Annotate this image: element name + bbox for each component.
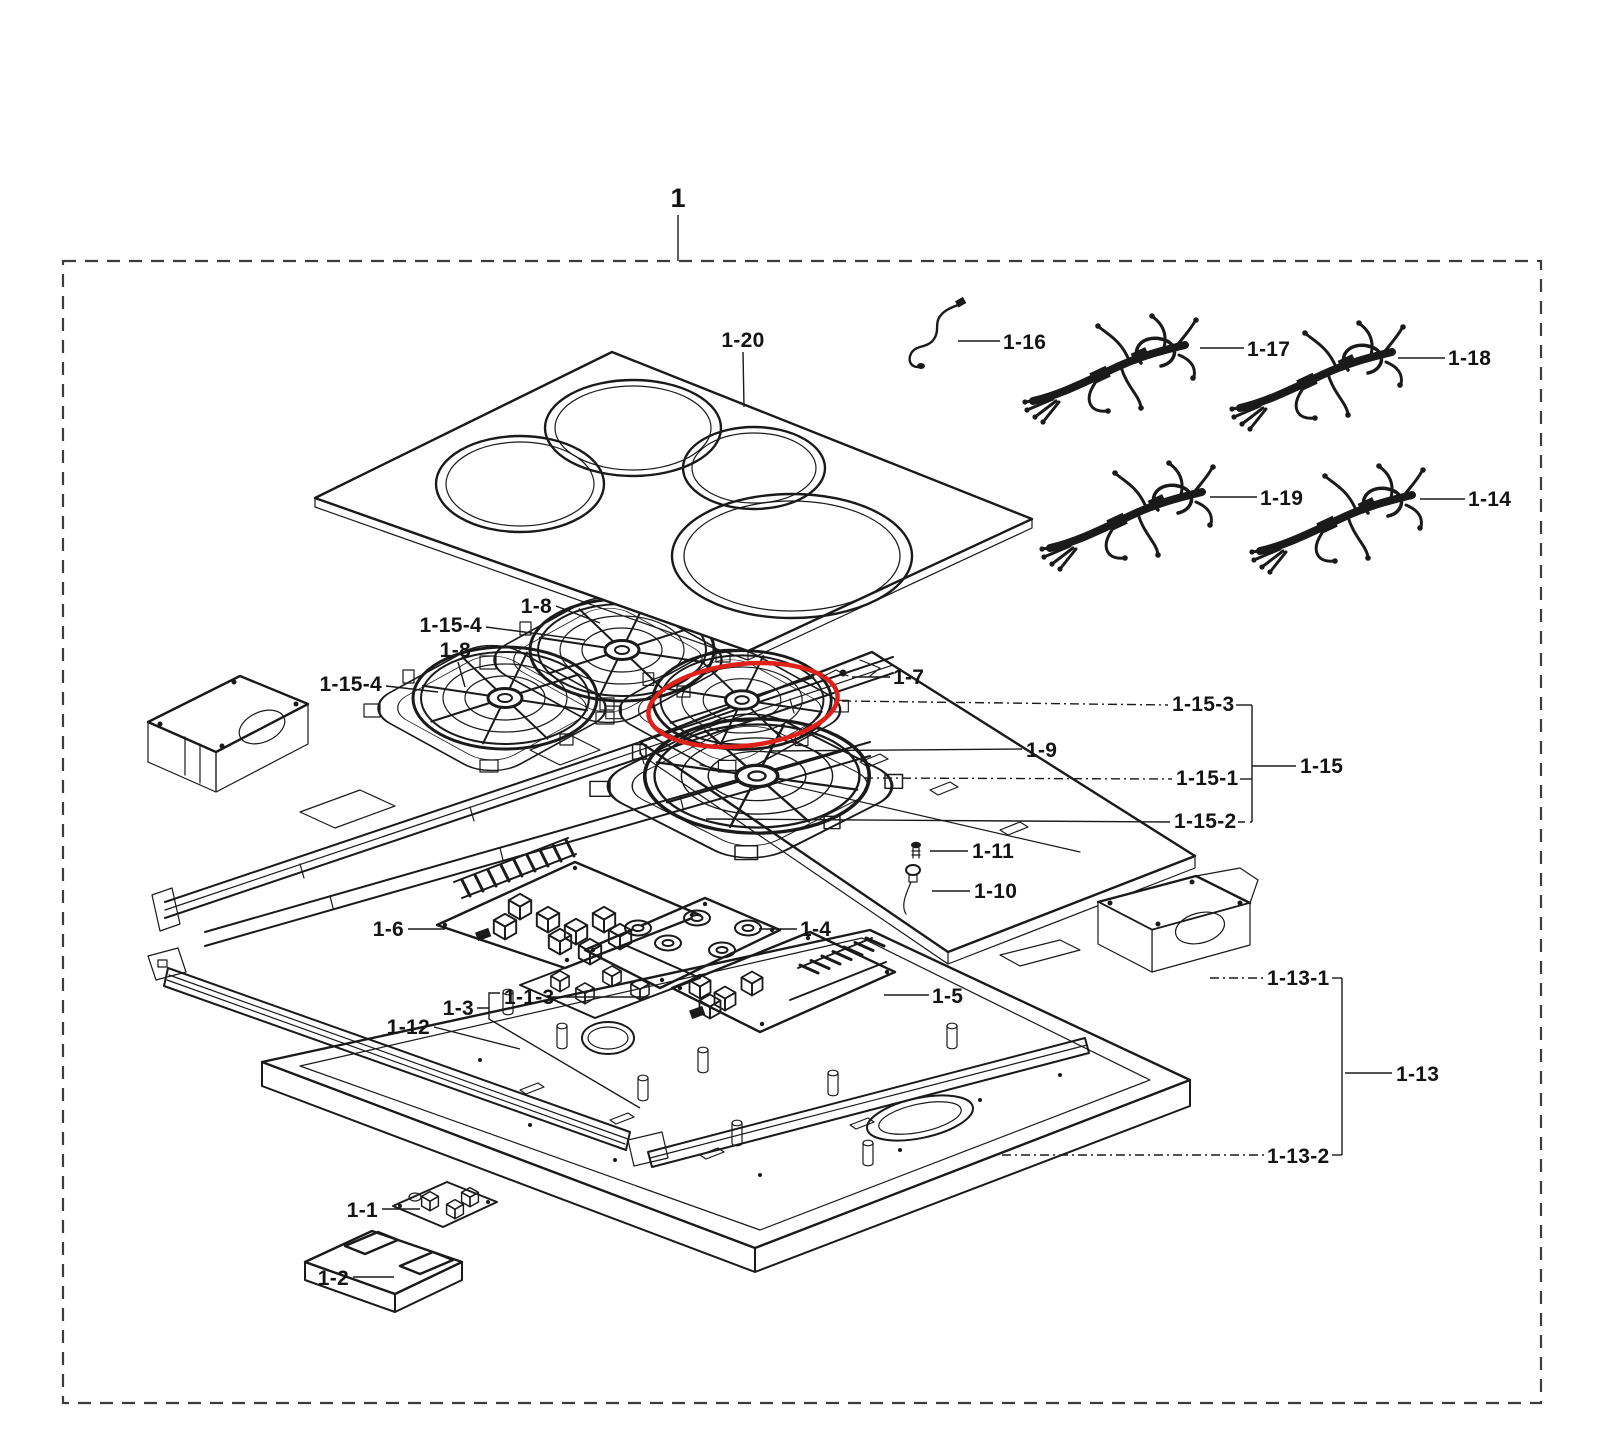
harness-1-19 [1039,460,1215,571]
part-label-1-1-3: 1-1-3 [504,986,555,1009]
part-label-1-3: 1-3 [443,997,474,1020]
part-label-1: 1 [670,183,685,213]
harness-1-18 [1229,320,1405,431]
base-pan [262,930,1190,1272]
part-label-1-7: 1-7 [893,666,924,689]
part-label-1-15-1: 1-15-1 [1176,767,1239,790]
induction-coil-left [403,647,597,749]
control-board-1-1 [393,1182,497,1227]
part-label-1-15-2: 1-15-2 [1174,810,1237,833]
part-label-1-20: 1-20 [721,329,764,352]
assembly-boundary [63,215,1541,1403]
part-label-1-9: 1-9 [1026,739,1057,762]
part-label-1-15: 1-15 [1300,755,1343,778]
part-label-1-1: 1-1 [347,1199,378,1222]
part-label-1-15-4-top: 1-15-4 [419,614,482,637]
part-label-1-6: 1-6 [373,918,404,941]
part-label-1-5: 1-5 [932,985,963,1008]
part-label-1-10: 1-10 [974,880,1017,903]
part-label-1-13-1: 1-13-1 [1267,967,1330,990]
part-label-1-16: 1-16 [1003,331,1046,354]
diagram-page: 1 1-20 1-16 1-17 1-18 1-19 1-14 1-8 1-15… [0,0,1600,1456]
mid-level-assembly [148,652,1195,964]
bracket-1-15 [1252,705,1296,822]
pcb-right-board [672,932,895,1032]
grommet-part-1-10 [904,865,920,914]
part-label-1-8-left: 1-8 [440,639,471,662]
screw-part-1-11 [911,842,921,858]
part-label-1-15-4-left: 1-15-4 [319,673,382,696]
part-label-1-11: 1-11 [972,840,1014,863]
part-label-1-14: 1-14 [1468,488,1511,511]
part-label-1-4: 1-4 [800,918,831,941]
part-label-1-13: 1-13 [1396,1063,1439,1086]
part-label-1-12: 1-12 [387,1016,430,1039]
blower-left [148,676,308,792]
harness-1-17 [1022,313,1198,424]
wire-1-16 [910,297,967,369]
part-label-1-17: 1-17 [1247,338,1290,361]
harness-1-14 [1249,463,1425,574]
part-label-1-15-3: 1-15-3 [1172,693,1235,716]
part-label-1-19: 1-19 [1260,487,1303,510]
trim-rail-front-right [628,1038,1089,1167]
part-label-1-8-top: 1-8 [521,595,552,618]
coil-plate-left [362,636,622,779]
part-label-1-13-2: 1-13-2 [1267,1145,1330,1168]
round-opening [582,1022,634,1054]
small-bracket [300,790,395,828]
trim-rail-front-left [148,948,630,1150]
blank-panel [1000,940,1080,966]
exploded-view-diagram: 1 1-20 1-16 1-17 1-18 1-19 1-14 1-8 1-15… [0,0,1600,1456]
part-label-1-18: 1-18 [1448,347,1491,370]
part-label-1-2: 1-2 [318,1267,349,1290]
